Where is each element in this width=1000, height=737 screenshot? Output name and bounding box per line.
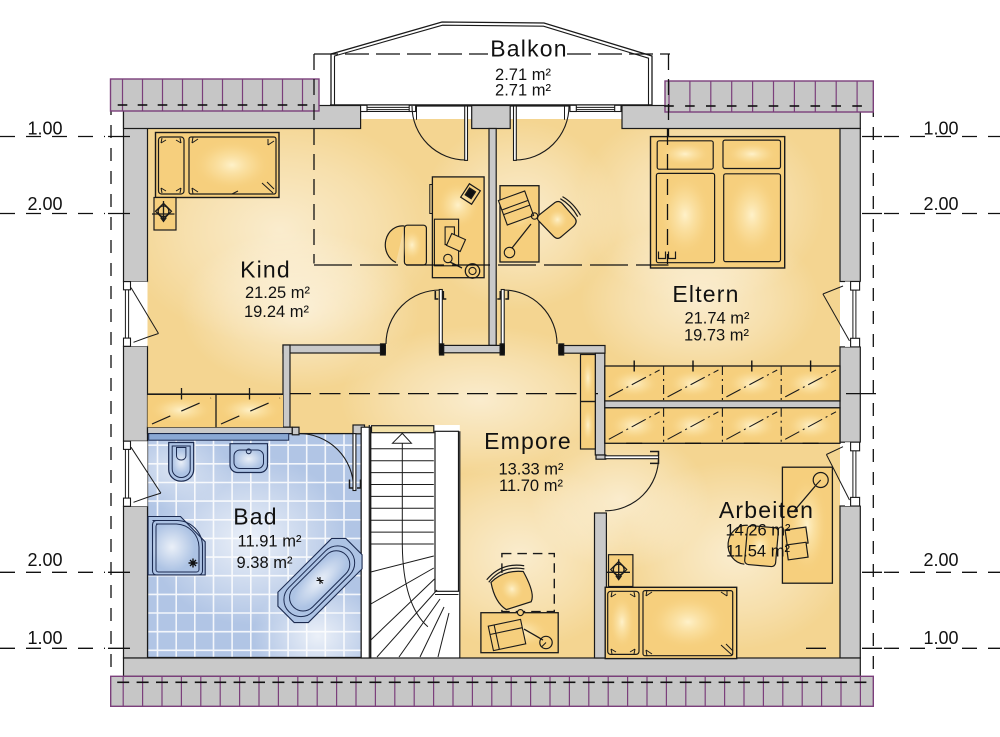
svg-text:2.00: 2.00 <box>27 550 62 570</box>
svg-text:2.00: 2.00 <box>27 194 62 214</box>
svg-text:11.91 m²: 11.91 m² <box>238 533 302 551</box>
svg-text:Balkon: Balkon <box>490 36 568 62</box>
svg-text:11.70 m²: 11.70 m² <box>499 477 563 495</box>
svg-text:21.25 m²: 21.25 m² <box>245 284 311 302</box>
svg-text:19.24 m²: 19.24 m² <box>244 303 310 321</box>
svg-text:Bad: Bad <box>233 504 278 530</box>
svg-text:1.00: 1.00 <box>27 628 62 648</box>
svg-text:1.00: 1.00 <box>923 119 958 139</box>
svg-text:Arbeiten: Arbeiten <box>719 497 814 523</box>
svg-text:Eltern: Eltern <box>672 281 739 307</box>
svg-text:13.33 m²: 13.33 m² <box>498 461 564 479</box>
svg-text:9.38 m²: 9.38 m² <box>237 554 293 572</box>
svg-text:Kind: Kind <box>240 257 291 283</box>
svg-text:19.73 m²: 19.73 m² <box>684 327 750 345</box>
svg-text:21.74 m²: 21.74 m² <box>684 310 750 328</box>
svg-text:2.71 m²: 2.71 m² <box>495 82 551 100</box>
svg-text:1.00: 1.00 <box>27 119 62 139</box>
svg-text:14.26 m²: 14.26 m² <box>725 522 791 540</box>
svg-text:Empore: Empore <box>484 428 572 454</box>
svg-text:2.00: 2.00 <box>923 194 958 214</box>
svg-text:1.00: 1.00 <box>923 628 958 648</box>
svg-text:2.00: 2.00 <box>923 550 958 570</box>
svg-text:11.54 m²: 11.54 m² <box>726 543 790 561</box>
